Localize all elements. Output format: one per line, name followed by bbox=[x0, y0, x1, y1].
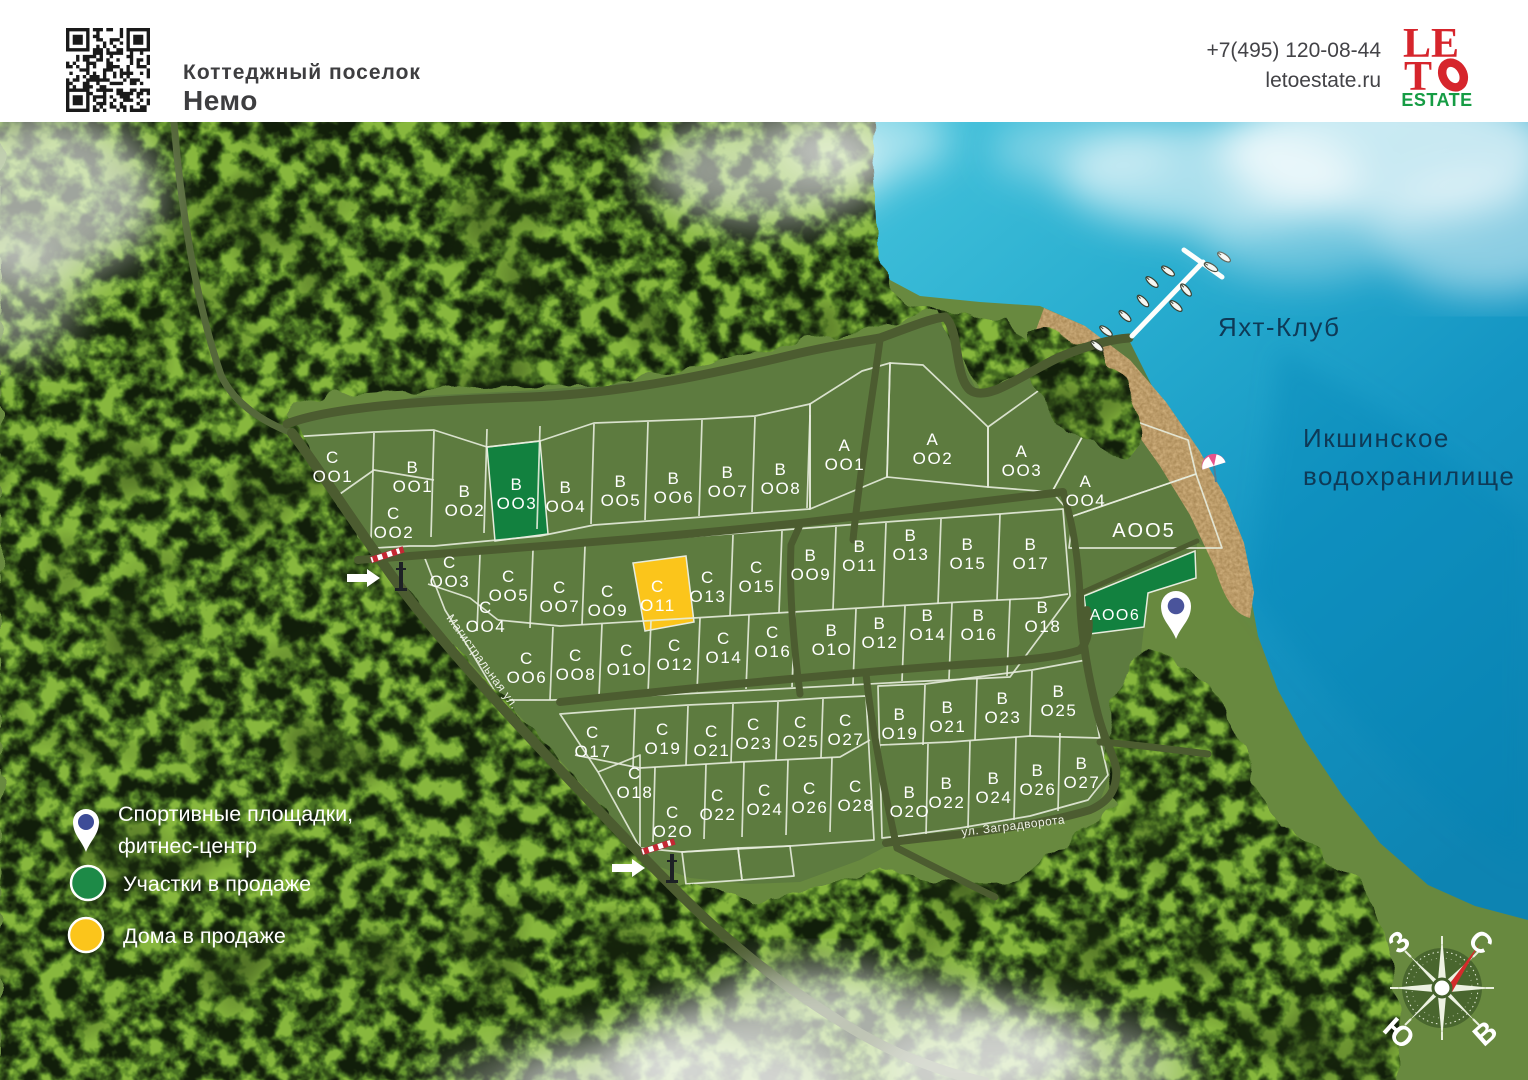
svg-text:letoestate.ru: letoestate.ru bbox=[1265, 69, 1381, 92]
svg-text:Спортивные площадки,: Спортивные площадки, bbox=[118, 802, 353, 826]
svg-text:Немо: Немо bbox=[183, 85, 258, 116]
svg-text:+7(495) 120-08-44: +7(495) 120-08-44 bbox=[1206, 39, 1381, 62]
svg-text:АOO6: АOO6 bbox=[1090, 607, 1140, 624]
svg-text:Икшинское: Икшинское bbox=[1303, 423, 1450, 453]
svg-text:Участки в продаже: Участки в продаже bbox=[123, 872, 311, 896]
svg-text:фитнес-центр: фитнес-центр bbox=[118, 834, 257, 858]
svg-text:АOO5: АOO5 bbox=[1112, 520, 1176, 542]
svg-text:Коттеджный поселок: Коттеджный поселок bbox=[183, 61, 421, 84]
svg-text:ESTATE: ESTATE bbox=[1401, 90, 1472, 110]
svg-text:водохранилище: водохранилище bbox=[1303, 461, 1515, 491]
svg-text:Дома в продаже: Дома в продаже bbox=[123, 924, 286, 948]
svg-text:Яхт-Клуб: Яхт-Клуб bbox=[1218, 312, 1341, 342]
